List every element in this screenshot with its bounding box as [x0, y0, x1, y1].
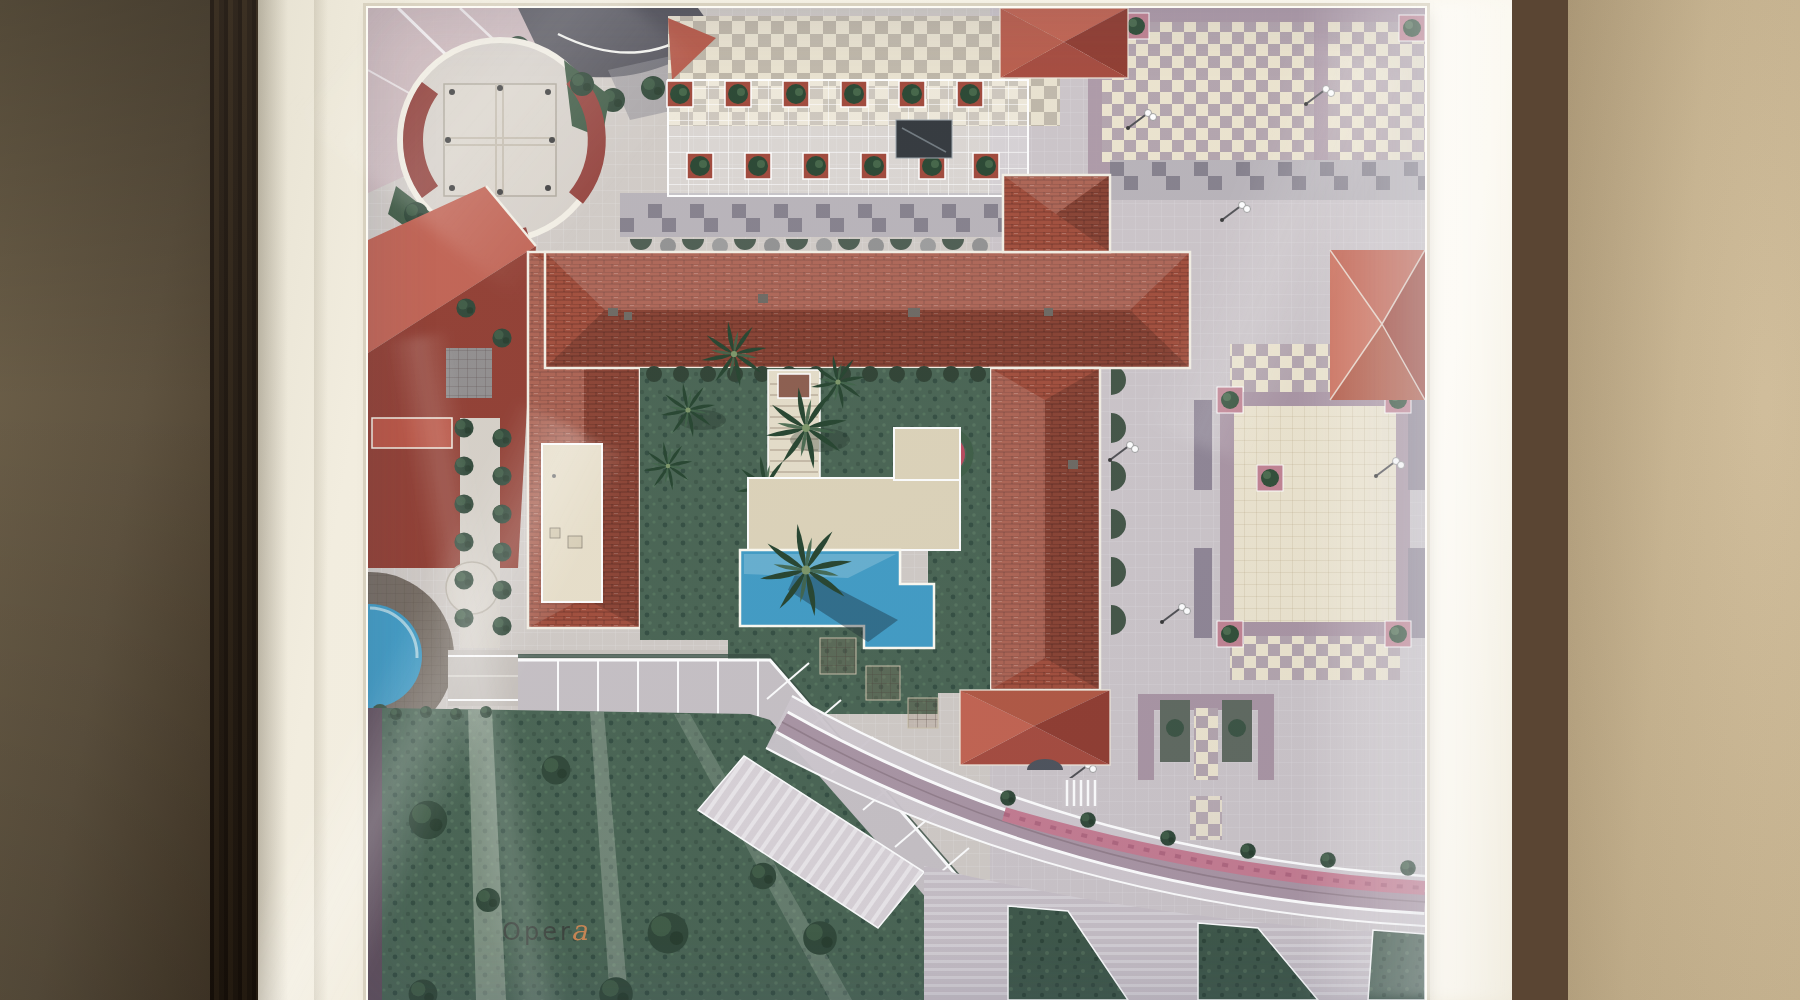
red-awning	[372, 418, 452, 448]
picture-frame-left-edge	[210, 0, 258, 1000]
signature-text: Oper	[502, 918, 573, 946]
wall-left	[0, 0, 210, 1000]
artist-signature: Opera	[502, 914, 590, 947]
framed-site-plan-photo: Opera	[0, 0, 1800, 1000]
checker-field-north-1	[1102, 22, 1314, 162]
pavilion-roof-east	[1330, 250, 1425, 400]
terrace-table	[896, 120, 952, 158]
wall-right	[1568, 0, 1800, 1000]
rooftop-terrace	[542, 444, 602, 602]
picture-frame-right-edge	[1512, 0, 1568, 1000]
signature-flourish: a	[571, 914, 591, 947]
stair-garden-wedge	[1368, 930, 1425, 1000]
checker-field-north-2	[1328, 22, 1425, 162]
site-plan-print: Opera	[368, 8, 1425, 1000]
site-plan-drawing	[368, 8, 1425, 1000]
mat-board: Opera	[258, 0, 1512, 1000]
pool-deck	[748, 478, 960, 550]
pavilion-roof-north	[1000, 8, 1128, 78]
